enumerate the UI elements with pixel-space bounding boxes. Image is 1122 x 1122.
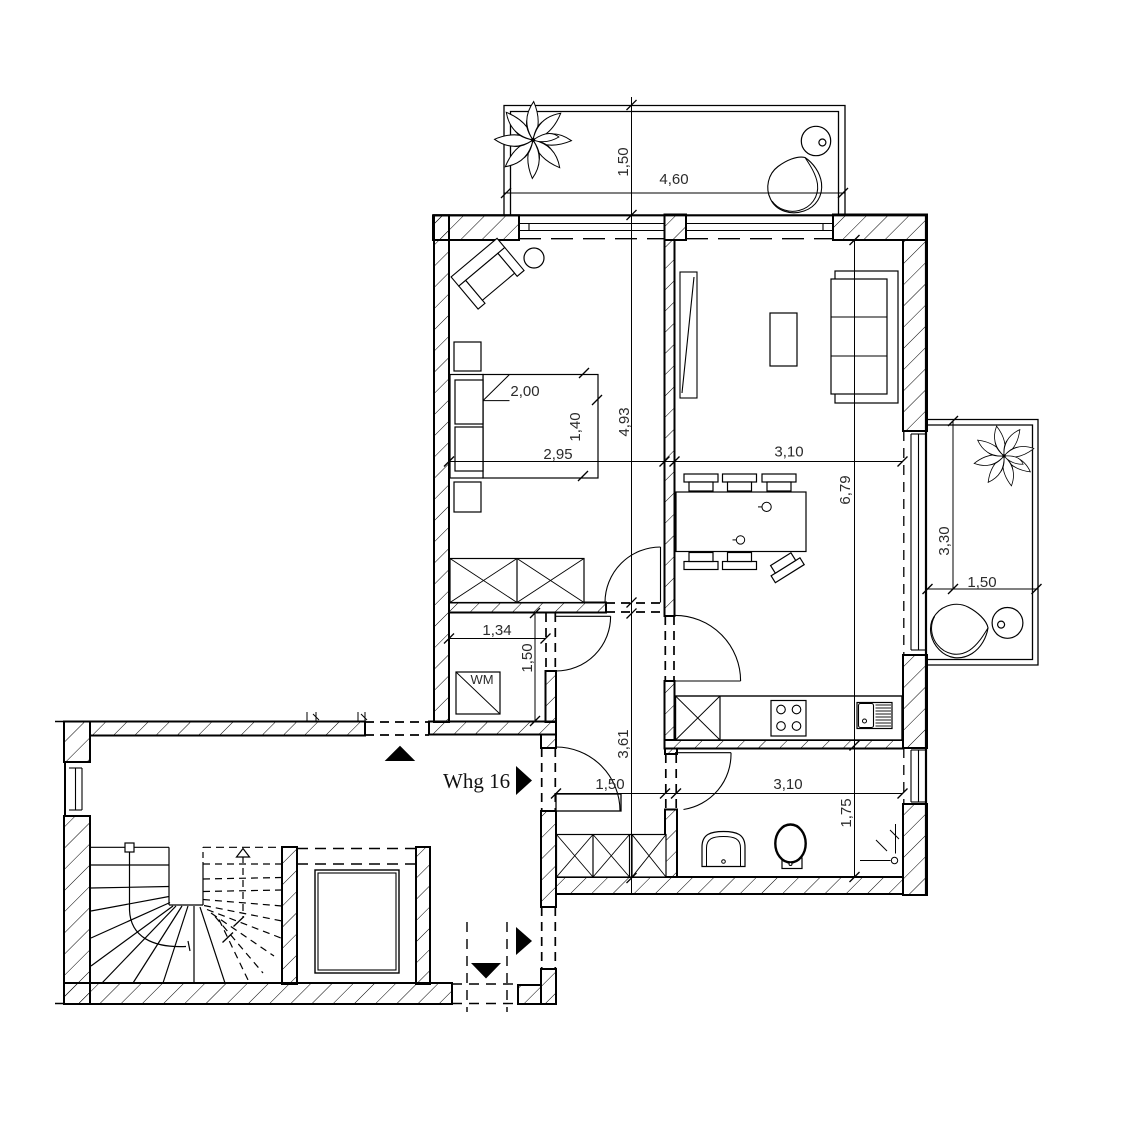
svg-text:Whg 16: Whg 16 (443, 769, 510, 793)
svg-text:4,93: 4,93 (616, 407, 633, 436)
svg-text:2,95: 2,95 (543, 446, 572, 463)
svg-text:3,10: 3,10 (773, 776, 802, 793)
svg-text:1,50: 1,50 (519, 643, 536, 672)
svg-text:1,34: 1,34 (482, 622, 511, 639)
svg-text:6,79: 6,79 (837, 475, 854, 504)
svg-text:3,30: 3,30 (936, 526, 953, 555)
svg-text:1,40: 1,40 (567, 412, 584, 441)
svg-text:1,50: 1,50 (967, 574, 996, 591)
svg-text:1,75: 1,75 (838, 798, 855, 827)
svg-text:2,00: 2,00 (510, 383, 539, 400)
svg-text:WM: WM (470, 672, 493, 687)
svg-text:3,61: 3,61 (615, 729, 632, 758)
svg-text:4,60: 4,60 (659, 171, 688, 188)
svg-text:3,10: 3,10 (774, 444, 803, 461)
svg-text:1,50: 1,50 (595, 776, 624, 793)
svg-text:1,50: 1,50 (615, 147, 632, 176)
